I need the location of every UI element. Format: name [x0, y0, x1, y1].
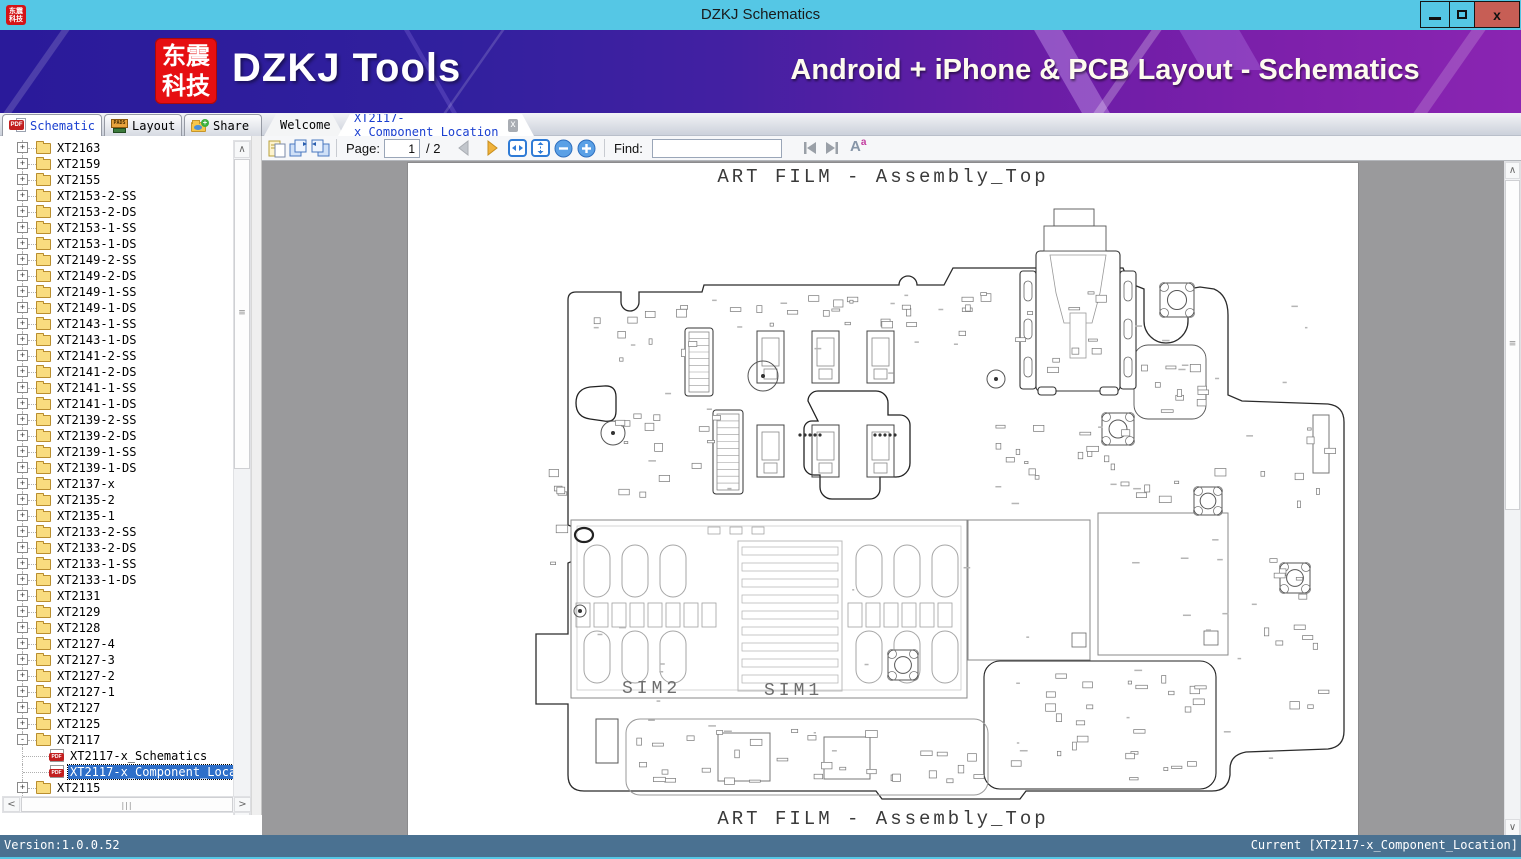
- tree-item[interactable]: +XT2159: [0, 156, 232, 172]
- expander-icon[interactable]: +: [17, 430, 28, 441]
- expander-icon[interactable]: +: [17, 366, 28, 377]
- next-page-icon[interactable]: [484, 139, 500, 157]
- folder-icon: [36, 143, 51, 154]
- app-window: 东震 科技 DZKJ Schematics x 东震 科技 DZKJ Tools…: [0, 0, 1521, 859]
- folder-icon: [36, 335, 51, 346]
- tree-item[interactable]: +XT2149-2-DS: [0, 268, 232, 284]
- tree-item[interactable]: +XT2139-2-SS: [0, 412, 232, 428]
- tree-item-label: XT2117: [55, 733, 102, 747]
- tree-item[interactable]: +XT2149-1-SS: [0, 284, 232, 300]
- status-bar: Version:1.0.0.52 Current [XT2117-x_Compo…: [0, 835, 1521, 857]
- tree-item[interactable]: +XT2153-1-SS: [0, 220, 232, 236]
- tab-label: Layout: [132, 119, 175, 133]
- find-previous-icon[interactable]: [802, 139, 818, 157]
- tree-item-label: XT2133-1-SS: [55, 557, 138, 571]
- folder-icon: [36, 399, 51, 410]
- tree-item-label: XT2143-1-SS: [55, 317, 138, 331]
- scroll-down-icon[interactable]: ∨: [1505, 819, 1520, 836]
- folder-icon: [36, 159, 51, 170]
- expander-icon[interactable]: +: [17, 174, 28, 185]
- scroll-left-icon[interactable]: <: [3, 797, 20, 812]
- folder-icon: [36, 623, 51, 634]
- find-input[interactable]: [652, 139, 782, 158]
- folder-icon: [36, 383, 51, 394]
- close-icon: x: [1493, 7, 1501, 23]
- folder-icon: [36, 527, 51, 538]
- maximize-button[interactable]: [1449, 1, 1475, 28]
- match-case-icon[interactable]: Aa: [850, 137, 866, 155]
- tree-item[interactable]: PDFXT2117-x_Schematics: [0, 748, 232, 764]
- drawing-title-bottom: ART FILM - Assembly_Top: [408, 808, 1358, 830]
- tree-item[interactable]: +XT2143-1-DS: [0, 332, 232, 348]
- tree-item[interactable]: +XT2153-2-SS: [0, 188, 232, 204]
- folder-icon: [36, 671, 51, 682]
- expander-icon[interactable]: +: [17, 286, 28, 297]
- tree-item[interactable]: +XT2163: [0, 140, 232, 156]
- tree-item-label: XT2117-x_Schematics: [68, 749, 209, 763]
- tree-item[interactable]: +XT2133-2-DS: [0, 540, 232, 556]
- tree-item-label: XT2135-1: [55, 509, 117, 523]
- tree-item-label: XT2133-2-DS: [55, 541, 138, 555]
- folder-icon: [36, 271, 51, 282]
- rotate-page-right-icon[interactable]: [310, 139, 330, 158]
- rotate-page-left-icon[interactable]: [289, 139, 309, 158]
- expander-icon[interactable]: +: [17, 158, 28, 169]
- tree-item-label: XT2115: [55, 781, 102, 795]
- pdf-viewer[interactable]: ART FILM - Assembly_Top: [262, 161, 1504, 835]
- expander-icon[interactable]: +: [17, 782, 28, 793]
- tree-item[interactable]: +XT2133-2-SS: [0, 524, 232, 540]
- tree-item[interactable]: +XT2135-1: [0, 508, 232, 524]
- tree-item-label: XT2155: [55, 173, 102, 187]
- tree-item-label: XT2141-1-DS: [55, 397, 138, 411]
- tree-item-label: XT2153-1-SS: [55, 221, 138, 235]
- tab-label: Welcome: [280, 118, 331, 132]
- tree-item-label: XT2127: [55, 701, 102, 715]
- toolbar-separator: [604, 139, 605, 157]
- folder-icon: [36, 367, 51, 378]
- tab-label: Share: [213, 119, 249, 133]
- audio-jack: [1020, 209, 1136, 395]
- pdf-page: ART FILM - Assembly_Top: [408, 163, 1358, 835]
- pdf-icon: PDF: [9, 118, 26, 134]
- version-label: Version:1.0.0.52: [4, 838, 120, 852]
- scroll-up-icon[interactable]: ∧: [1505, 162, 1520, 179]
- expander-icon[interactable]: +: [17, 718, 28, 729]
- tree-item[interactable]: +XT2135-2: [0, 492, 232, 508]
- folder-icon: [36, 575, 51, 586]
- viewer-vscrollbar[interactable]: ∧ ≡ ∨: [1504, 161, 1521, 835]
- folder-icon: [36, 431, 51, 442]
- expander-icon[interactable]: +: [17, 254, 28, 265]
- tree-item-label: XT2127-1: [55, 685, 117, 699]
- tree-item-label: XT2139-2-SS: [55, 413, 138, 427]
- tab-label: XT2117-x_Component_Location: [354, 111, 503, 139]
- logo-text-line2: 科技: [155, 71, 217, 101]
- tree-item[interactable]: +XT2115: [0, 780, 232, 796]
- tree-item-label: XT2127-3: [55, 653, 117, 667]
- pdf-toolbar: Page: / 2 Find:: [262, 136, 1521, 161]
- tree-item[interactable]: +XT2141-1-DS: [0, 396, 232, 412]
- expander-icon[interactable]: +: [17, 558, 28, 569]
- tree-item-label: XT2163: [55, 141, 102, 155]
- page-number-input[interactable]: [384, 139, 420, 158]
- sidebar-hscrollbar[interactable]: < ||| >: [2, 796, 251, 813]
- folder-icon: [36, 287, 51, 298]
- folder-icon: [36, 479, 51, 490]
- expander-icon[interactable]: +: [17, 238, 28, 249]
- folder-icon: [36, 655, 51, 666]
- scroll-right-icon[interactable]: >: [234, 797, 251, 812]
- expander-icon[interactable]: +: [17, 350, 28, 361]
- tree-item-label: XT2149-2-SS: [55, 253, 138, 267]
- tree-item[interactable]: +XT2149-1-DS: [0, 300, 232, 316]
- tree-item[interactable]: +XT2133-1-DS: [0, 572, 232, 588]
- expander-icon[interactable]: +: [17, 622, 28, 633]
- toolbar-separator: [336, 139, 337, 157]
- close-button[interactable]: x: [1474, 1, 1520, 28]
- folder-icon: [36, 703, 51, 714]
- tree-item-label: XT2149-1-SS: [55, 285, 138, 299]
- folder-icon: [36, 207, 51, 218]
- expander-icon[interactable]: +: [17, 542, 28, 553]
- current-document-label: Current [XT2117-x_Component_Location]: [1251, 838, 1518, 852]
- expander-icon[interactable]: +: [17, 318, 28, 329]
- tree-item[interactable]: +XT2127-4: [0, 636, 232, 652]
- expander-icon[interactable]: +: [17, 302, 28, 313]
- folder-icon: [36, 463, 51, 474]
- expander-icon[interactable]: -: [17, 734, 28, 745]
- page-label: Page:: [346, 141, 380, 156]
- panel-splitter[interactable]: [251, 136, 262, 815]
- header-banner: 东震 科技 DZKJ Tools Android + iPhone & PCB …: [0, 30, 1521, 113]
- expander-icon[interactable]: +: [17, 462, 28, 473]
- title-bar: 东震 科技 DZKJ Schematics x: [0, 0, 1521, 30]
- sim2-label: SIM2: [622, 679, 681, 699]
- tab-strip: PDF Schematic PADS Layout + Share Welcom…: [0, 113, 1521, 136]
- folder-icon: [36, 223, 51, 234]
- sidebar-vscrollbar[interactable]: ∧ ≡ ∨: [233, 140, 251, 815]
- tree-item-label: XT2139-2-DS: [55, 429, 138, 443]
- tree-item-label: XT2141-2-DS: [55, 365, 138, 379]
- folder-icon: [36, 255, 51, 266]
- tab-layout[interactable]: PADS Layout: [104, 114, 182, 136]
- folder-icon: [36, 447, 51, 458]
- minimize-icon: [1429, 17, 1441, 20]
- zoom-in-icon[interactable]: [577, 139, 596, 158]
- tree-item-label: XT2141-2-SS: [55, 349, 138, 363]
- tree-item[interactable]: PDFXT2117-x_Component_Location: [0, 764, 232, 780]
- tree-item-label: XT2133-2-SS: [55, 525, 138, 539]
- tab-schematic[interactable]: PDF Schematic: [2, 114, 102, 136]
- tree-item[interactable]: +XT2141-1-SS: [0, 380, 232, 396]
- expander-icon[interactable]: +: [17, 478, 28, 489]
- tree-item-label: XT2153-2-SS: [55, 189, 138, 203]
- expander-icon[interactable]: +: [17, 222, 28, 233]
- folder-icon: [36, 735, 51, 746]
- scroll-up-icon[interactable]: ∧: [234, 141, 250, 158]
- expander-icon[interactable]: +: [17, 382, 28, 393]
- expander-icon[interactable]: +: [17, 526, 28, 537]
- pads-icon: PADS: [111, 118, 128, 134]
- folder-icon: [36, 639, 51, 650]
- pdf-icon: PDF: [50, 749, 64, 762]
- expander-icon[interactable]: +: [17, 494, 28, 505]
- scrollbar-thumb[interactable]: |||: [21, 797, 233, 812]
- pdf-icon: PDF: [50, 765, 64, 778]
- tree-item[interactable]: +XT2129: [0, 604, 232, 620]
- folder-icon: [36, 319, 51, 330]
- tree-item[interactable]: +XT2127-3: [0, 652, 232, 668]
- expander-icon[interactable]: +: [17, 638, 28, 649]
- folder-icon: [36, 239, 51, 250]
- tree-item[interactable]: +XT2125: [0, 716, 232, 732]
- window-title: DZKJ Schematics: [0, 6, 1521, 23]
- tree-item[interactable]: +XT2155: [0, 172, 232, 188]
- expander-icon[interactable]: +: [17, 686, 28, 697]
- tree-item-label: XT2127-2: [55, 669, 117, 683]
- expander-icon[interactable]: +: [17, 702, 28, 713]
- tree-item[interactable]: -XT2117: [0, 732, 232, 748]
- expander-icon[interactable]: +: [17, 510, 28, 521]
- scrollbar-thumb[interactable]: ≡: [234, 159, 250, 469]
- fit-page-icon[interactable]: [531, 139, 550, 158]
- banner-streak: [0, 30, 77, 113]
- folder-icon: [36, 351, 51, 362]
- tree-item[interactable]: +XT2128: [0, 620, 232, 636]
- tree-item[interactable]: +XT2139-1-DS: [0, 460, 232, 476]
- brand-title: DZKJ Tools: [232, 46, 461, 91]
- tree-item[interactable]: +XT2131: [0, 588, 232, 604]
- expander-icon[interactable]: +: [17, 654, 28, 665]
- tree-item-label: XT2139-1-DS: [55, 461, 138, 475]
- folder-icon: [36, 543, 51, 554]
- tree-item-label: XT2153-2-DS: [55, 205, 138, 219]
- tree-item[interactable]: +XT2139-2-DS: [0, 428, 232, 444]
- tree-item-label: XT2143-1-DS: [55, 333, 138, 347]
- tree-item-label: XT2149-2-DS: [55, 269, 138, 283]
- sim1-label: SIM1: [764, 681, 823, 701]
- expander-icon[interactable]: +: [17, 334, 28, 345]
- folder-icon: [36, 175, 51, 186]
- folder-icon: [36, 719, 51, 730]
- tree-item-label: XT2128: [55, 621, 102, 635]
- maximize-icon: [1457, 10, 1467, 19]
- expander-icon[interactable]: +: [17, 190, 28, 201]
- folder-icon: [36, 559, 51, 570]
- folder-icon: [36, 687, 51, 698]
- previous-page-icon[interactable]: [456, 139, 472, 157]
- tree-item-label: XT2129: [55, 605, 102, 619]
- find-label: Find:: [614, 141, 643, 156]
- tree-item-label: XT2153-1-DS: [55, 237, 138, 251]
- sidebar-tree-panel: +XT2163+XT2159+XT2155+XT2153-2-SS+XT2153…: [0, 136, 251, 815]
- tree-item[interactable]: +XT2133-1-SS: [0, 556, 232, 572]
- expander-icon[interactable]: +: [17, 670, 28, 681]
- tree-item[interactable]: +XT2149-2-SS: [0, 252, 232, 268]
- doc-tab-welcome[interactable]: Welcome: [264, 114, 344, 136]
- tree-item-label: XT2131: [55, 589, 102, 603]
- tree-item[interactable]: +XT2127-2: [0, 668, 232, 684]
- tree-item-label: XT2125: [55, 717, 102, 731]
- folder-icon: [36, 783, 51, 794]
- scrollbar-thumb[interactable]: ≡: [1505, 180, 1520, 510]
- expander-icon[interactable]: +: [17, 398, 28, 409]
- folder-icon: [36, 591, 51, 602]
- tree-item-label: XT2135-2: [55, 493, 117, 507]
- folder-icon: [36, 415, 51, 426]
- tree-item[interactable]: +XT2127-1: [0, 684, 232, 700]
- tree-item[interactable]: +XT2153-2-DS: [0, 204, 232, 220]
- tree-item-label: XT2141-1-SS: [55, 381, 138, 395]
- tree-item[interactable]: +XT2143-1-SS: [0, 316, 232, 332]
- logo-text-line1: 东震: [155, 41, 217, 71]
- expander-icon[interactable]: +: [17, 574, 28, 585]
- tree-item[interactable]: +XT2127: [0, 700, 232, 716]
- folder-icon: [36, 495, 51, 506]
- share-folder-icon: +: [191, 118, 209, 134]
- minimize-button[interactable]: [1420, 1, 1450, 28]
- expander-icon[interactable]: +: [17, 270, 28, 281]
- file-tree: +XT2163+XT2159+XT2155+XT2153-2-SS+XT2153…: [0, 140, 232, 812]
- snapshot-icon[interactable]: [268, 139, 286, 158]
- expander-icon[interactable]: +: [17, 606, 28, 617]
- fit-width-icon[interactable]: [508, 139, 527, 158]
- page-total-label: / 2: [426, 141, 440, 156]
- expander-icon[interactable]: +: [17, 590, 28, 601]
- find-next-icon[interactable]: [824, 139, 840, 157]
- expander-icon[interactable]: +: [17, 142, 28, 153]
- tree-item-label: XT2159: [55, 157, 102, 171]
- tree-item-label: XT2127-4: [55, 637, 117, 651]
- tree-item[interactable]: +XT2137-x: [0, 476, 232, 492]
- brand-logo: 东震 科技: [155, 38, 217, 104]
- pcb-drawing: SIM2 SIM1: [408, 163, 1358, 835]
- tab-close-icon[interactable]: x: [508, 119, 518, 132]
- folder-icon: [36, 303, 51, 314]
- tab-label: Schematic: [30, 119, 95, 133]
- tab-share[interactable]: + Share: [184, 114, 262, 136]
- folder-icon: [36, 607, 51, 618]
- folder-icon: [36, 511, 51, 522]
- expander-icon[interactable]: +: [17, 414, 28, 425]
- tree-item-label: XT2139-1-SS: [55, 445, 138, 459]
- folder-icon: [36, 191, 51, 202]
- doc-tab-component-location[interactable]: XT2117-x_Component_Location x: [338, 114, 534, 136]
- tree-item-label: XT2133-1-DS: [55, 573, 138, 587]
- tree-item-label: XT2117-x_Component_Location: [68, 765, 251, 779]
- expander-icon[interactable]: +: [17, 446, 28, 457]
- tree-item-label: XT2149-1-DS: [55, 301, 138, 315]
- tree-item[interactable]: +XT2153-1-DS: [0, 236, 232, 252]
- tree-item[interactable]: +XT2141-2-SS: [0, 348, 232, 364]
- tree-item[interactable]: +XT2139-1-SS: [0, 444, 232, 460]
- tree-item[interactable]: +XT2141-2-DS: [0, 364, 232, 380]
- expander-icon[interactable]: +: [17, 206, 28, 217]
- banner-tagline: Android + iPhone & PCB Layout - Schemati…: [780, 54, 1430, 87]
- tree-item-label: XT2137-x: [55, 477, 117, 491]
- zoom-out-icon[interactable]: [554, 139, 573, 158]
